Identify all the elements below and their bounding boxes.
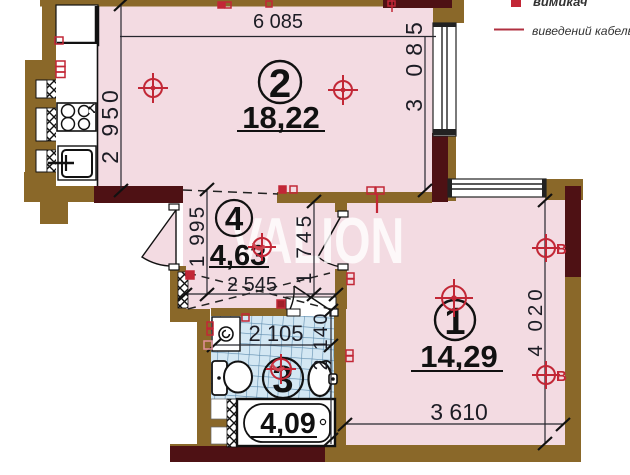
svg-text:1 995: 1 995 xyxy=(186,205,209,268)
svg-text:2 140: 2 140 xyxy=(310,312,332,371)
svg-text:4: 4 xyxy=(225,200,244,237)
svg-text:4 020: 4 020 xyxy=(524,285,547,356)
svg-text:2 105: 2 105 xyxy=(248,321,303,346)
svg-text:1 745: 1 745 xyxy=(293,212,316,285)
svg-text:3 085: 3 085 xyxy=(401,14,427,112)
svg-text:В: В xyxy=(556,241,567,258)
svg-text:виведений кабель: виведений кабель xyxy=(532,24,630,38)
svg-text:2 950: 2 950 xyxy=(97,86,123,164)
svg-text:3 610: 3 610 xyxy=(430,399,488,425)
svg-text:В: В xyxy=(556,368,567,385)
svg-text:18,22: 18,22 xyxy=(242,100,320,135)
svg-text:6 085: 6 085 xyxy=(253,11,303,33)
svg-text:14,29: 14,29 xyxy=(420,339,498,374)
svg-text:вимикач: вимикач xyxy=(533,0,588,9)
svg-text:4,09: 4,09 xyxy=(260,408,315,440)
svg-text:2 545: 2 545 xyxy=(227,274,277,296)
